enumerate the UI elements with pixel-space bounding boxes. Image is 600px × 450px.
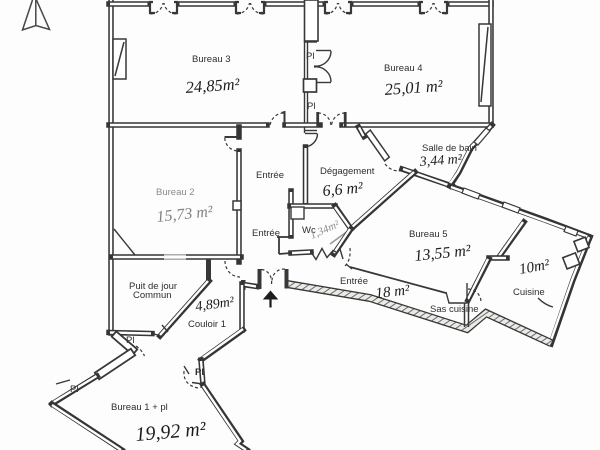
svg-text:Cuisine: Cuisine <box>513 287 545 298</box>
svg-text:Bureau 4: Bureau 4 <box>384 63 423 74</box>
svg-text:Pl: Pl <box>70 384 78 395</box>
svg-text:Pl: Pl <box>306 51 314 62</box>
svg-text:Sas cuisine: Sas cuisine <box>430 304 479 315</box>
svg-text:6,6 m²: 6,6 m² <box>322 179 365 200</box>
svg-text:Dégagement: Dégagement <box>320 166 375 177</box>
svg-text:Commun: Commun <box>133 290 172 301</box>
svg-text:Entrée: Entrée <box>252 228 280 239</box>
svg-text:Pl: Pl <box>307 101 315 112</box>
svg-text:Pl: Pl <box>126 335 134 346</box>
svg-text:Bureau 3: Bureau 3 <box>192 54 231 65</box>
svg-text:Entrée: Entrée <box>340 276 368 287</box>
svg-text:Entrée: Entrée <box>256 170 284 181</box>
svg-text:Bureau 5: Bureau 5 <box>409 229 448 240</box>
svg-text:3,44 m²: 3,44 m² <box>418 152 463 170</box>
svg-text:Couloir 1: Couloir 1 <box>188 319 226 330</box>
svg-text:Bureau 2: Bureau 2 <box>156 187 195 198</box>
svg-text:Pl: Pl <box>195 367 204 378</box>
svg-text:24,85m²: 24,85m² <box>185 74 241 97</box>
svg-text:Bureau 1 + pl: Bureau 1 + pl <box>111 402 168 413</box>
